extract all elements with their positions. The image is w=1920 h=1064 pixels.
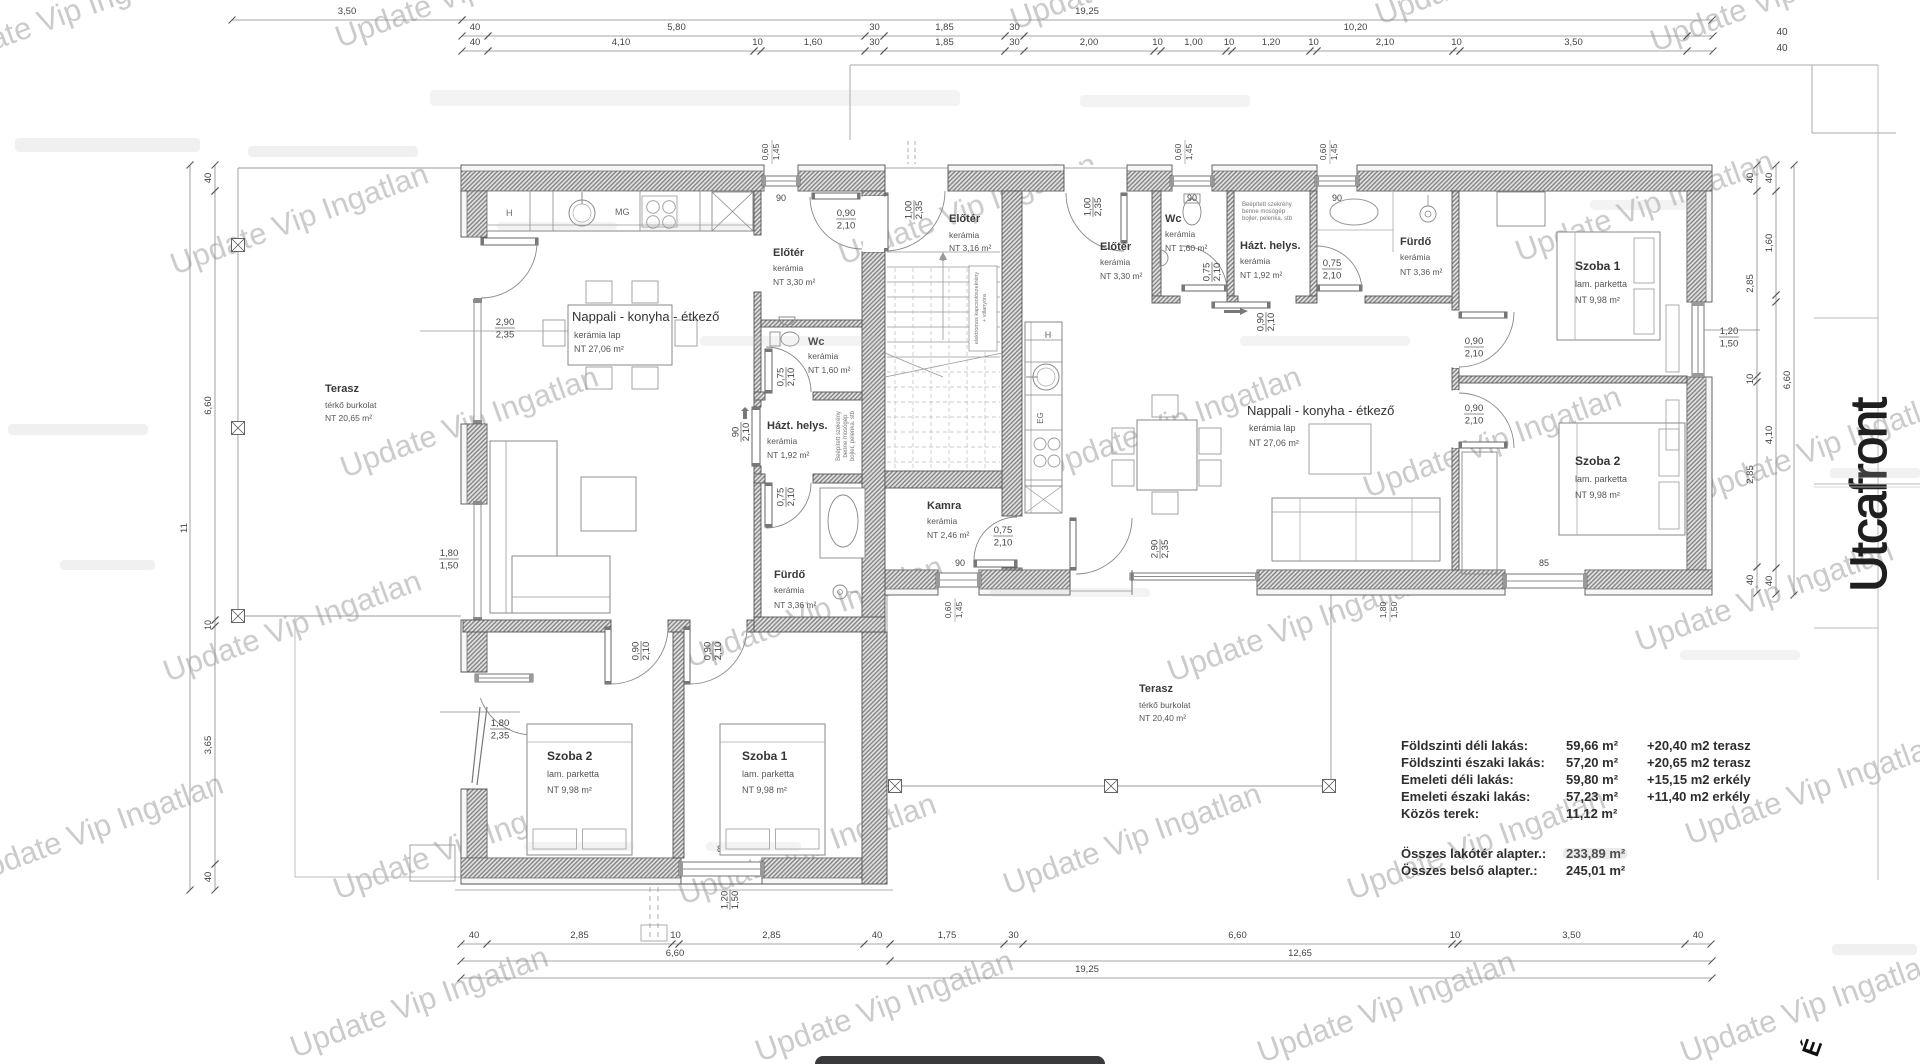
svg-text:NT 9,98 m²: NT 9,98 m² xyxy=(742,785,787,795)
svg-text:40: 40 xyxy=(470,22,481,33)
svg-text:2,00: 2,00 xyxy=(1080,37,1099,48)
svg-text:1,50: 1,50 xyxy=(1720,339,1739,350)
svg-text:90: 90 xyxy=(1332,193,1342,203)
svg-text:2,10: 2,10 xyxy=(1376,37,1395,48)
svg-text:kerámia lap: kerámia lap xyxy=(574,330,621,340)
svg-text:Emeleti északi lakás:: Emeleti északi lakás: xyxy=(1401,789,1530,804)
svg-text:Kamra: Kamra xyxy=(927,500,962,512)
svg-text:6,60: 6,60 xyxy=(1782,371,1793,390)
svg-text:benne mosógép: benne mosógép xyxy=(1242,209,1286,215)
svg-text:lam. parketta: lam. parketta xyxy=(742,769,794,779)
svg-text:1,20: 1,20 xyxy=(720,891,731,910)
svg-text:NT 27,06 m²: NT 27,06 m² xyxy=(1249,438,1299,448)
svg-text:H: H xyxy=(506,208,513,218)
svg-text:kerámia: kerámia xyxy=(949,230,980,240)
svg-text:2,85: 2,85 xyxy=(1745,274,1756,293)
svg-text:2,10: 2,10 xyxy=(741,423,752,442)
svg-text:1,50: 1,50 xyxy=(1389,601,1399,618)
svg-text:NT 9,98 m²: NT 9,98 m² xyxy=(1575,295,1620,305)
svg-text:10: 10 xyxy=(670,930,681,941)
svg-text:NT 9,98 m²: NT 9,98 m² xyxy=(1575,490,1620,500)
svg-text:40: 40 xyxy=(1745,173,1756,184)
svg-text:40: 40 xyxy=(1776,43,1788,54)
svg-text:57,20 m²: 57,20 m² xyxy=(1566,755,1619,770)
svg-text:90: 90 xyxy=(955,558,965,568)
svg-text:bojler, pelenka. stb: bojler, pelenka. stb xyxy=(1242,216,1293,222)
svg-text:kerámia: kerámia xyxy=(773,263,804,273)
svg-text:Beépített szekrény: Beépített szekrény xyxy=(1242,202,1292,208)
svg-text:10: 10 xyxy=(1745,374,1756,385)
svg-text:40: 40 xyxy=(203,872,214,883)
svg-text:30: 30 xyxy=(1009,22,1020,33)
svg-text:3,50: 3,50 xyxy=(1562,930,1581,941)
svg-text:0,60: 0,60 xyxy=(760,143,770,160)
svg-text:kerámia: kerámia xyxy=(1100,257,1131,267)
svg-text:2,10: 2,10 xyxy=(837,221,856,232)
svg-text:+ villanyóra: + villanyóra xyxy=(982,293,988,322)
svg-text:2,35: 2,35 xyxy=(914,201,925,220)
svg-text:Szoba 1: Szoba 1 xyxy=(1575,259,1621,273)
svg-text:kerámia: kerámia xyxy=(767,436,798,446)
svg-text:2,10: 2,10 xyxy=(1465,416,1484,427)
svg-text:NT 3,30 m²: NT 3,30 m² xyxy=(1100,271,1143,281)
svg-text:40: 40 xyxy=(470,37,481,48)
svg-text:2,10: 2,10 xyxy=(1266,313,1277,332)
svg-text:2,35: 2,35 xyxy=(1093,198,1104,217)
svg-text:NT 3,36 m²: NT 3,36 m² xyxy=(1400,267,1443,277)
svg-text:3,50: 3,50 xyxy=(1564,37,1583,48)
svg-text:10: 10 xyxy=(1450,930,1461,941)
svg-text:1,45: 1,45 xyxy=(771,143,781,160)
svg-text:2,10: 2,10 xyxy=(1323,271,1342,282)
svg-text:30: 30 xyxy=(869,37,880,48)
svg-text:Földszinti déli lakás:: Földszinti déli lakás: xyxy=(1401,738,1528,753)
svg-text:2,10: 2,10 xyxy=(1465,349,1484,360)
svg-text:Előtér: Előtér xyxy=(773,247,805,259)
svg-text:2,35: 2,35 xyxy=(491,731,510,742)
svg-text:2,10: 2,10 xyxy=(641,642,652,661)
svg-text:bojler, pelenka. stb: bojler, pelenka. stb xyxy=(850,410,856,461)
svg-text:1,80: 1,80 xyxy=(440,548,459,559)
svg-text:NT 20,65 m²: NT 20,65 m² xyxy=(325,413,372,423)
svg-text:85: 85 xyxy=(1539,558,1549,568)
svg-text:NT 1,60 m²: NT 1,60 m² xyxy=(808,365,851,375)
svg-text:1,45: 1,45 xyxy=(1329,143,1339,160)
svg-text:Földszinti északi lakás:: Földszinti északi lakás: xyxy=(1401,755,1545,770)
svg-text:1,00: 1,00 xyxy=(1184,37,1203,48)
svg-text:12,65: 12,65 xyxy=(1288,948,1312,959)
svg-text:Nappali - konyha - étkező: Nappali - konyha - étkező xyxy=(1247,403,1394,418)
svg-text:NT 3,16 m²: NT 3,16 m² xyxy=(949,243,992,253)
svg-text:lam. parketta: lam. parketta xyxy=(1575,279,1627,289)
svg-text:kerámia: kerámia xyxy=(1400,252,1431,262)
svg-text:1,50: 1,50 xyxy=(440,561,459,572)
svg-text:+20,65 m2 terasz: +20,65 m2 terasz xyxy=(1647,755,1751,770)
svg-text:59,66 m²: 59,66 m² xyxy=(1566,738,1619,753)
svg-text:2,10: 2,10 xyxy=(1212,263,1223,282)
svg-text:2,10: 2,10 xyxy=(713,642,724,661)
svg-text:4,10: 4,10 xyxy=(612,37,631,48)
svg-text:NT 9,98 m²: NT 9,98 m² xyxy=(547,785,592,795)
svg-text:lam. parketta: lam. parketta xyxy=(547,769,599,779)
svg-text:0,75: 0,75 xyxy=(776,488,787,507)
svg-text:2,10: 2,10 xyxy=(994,538,1013,549)
svg-text:kerámia: kerámia xyxy=(774,585,805,595)
svg-text:NT 27,06 m²: NT 27,06 m² xyxy=(574,344,624,354)
svg-text:kerámia: kerámia xyxy=(927,516,958,526)
svg-text:+11,40 m2 erkély: +11,40 m2 erkély xyxy=(1647,789,1751,804)
svg-text:kerámia: kerámia xyxy=(808,351,839,361)
svg-text:Fürdő: Fürdő xyxy=(774,569,805,581)
svg-text:Terasz: Terasz xyxy=(1139,683,1174,695)
svg-text:0,90: 0,90 xyxy=(631,642,642,661)
svg-text:0,90: 0,90 xyxy=(703,642,714,661)
svg-text:10: 10 xyxy=(1308,37,1319,48)
svg-text:6,60: 6,60 xyxy=(203,396,214,415)
svg-text:2,90: 2,90 xyxy=(496,317,515,328)
svg-text:2,10: 2,10 xyxy=(786,488,797,507)
svg-text:Wc: Wc xyxy=(1165,213,1182,225)
svg-text:+15,15 m2 erkély: +15,15 m2 erkély xyxy=(1647,772,1751,787)
svg-text:3,65: 3,65 xyxy=(203,736,214,755)
svg-text:MG: MG xyxy=(615,207,630,217)
svg-text:0,90: 0,90 xyxy=(1465,336,1484,347)
svg-text:0,75: 0,75 xyxy=(1323,258,1342,269)
svg-text:19,25: 19,25 xyxy=(1075,964,1099,975)
svg-text:6,60: 6,60 xyxy=(666,948,685,959)
svg-text:+20,40 m2 terasz: +20,40 m2 terasz xyxy=(1647,738,1751,753)
svg-text:10: 10 xyxy=(203,620,213,630)
svg-text:NT 1,60 m²: NT 1,60 m² xyxy=(1165,243,1208,253)
svg-text:1,00: 1,00 xyxy=(904,201,915,220)
svg-text:térkő burkolat: térkő burkolat xyxy=(325,400,377,410)
svg-text:Nappali - konyha - étkező: Nappali - konyha - étkező xyxy=(572,309,719,324)
svg-text:1,20: 1,20 xyxy=(1720,326,1739,337)
svg-text:30: 30 xyxy=(1009,37,1020,48)
svg-text:40: 40 xyxy=(1764,173,1775,184)
svg-text:Összes lakótér alapter.:: Összes lakótér alapter.: xyxy=(1401,846,1546,861)
svg-text:Terasz: Terasz xyxy=(325,383,360,395)
svg-text:10: 10 xyxy=(1152,37,1163,48)
svg-text:10: 10 xyxy=(1451,37,1462,48)
svg-text:3,50: 3,50 xyxy=(338,6,357,17)
svg-text:0,60: 0,60 xyxy=(1173,143,1183,160)
svg-text:57,23 m²: 57,23 m² xyxy=(1566,789,1619,804)
svg-text:40: 40 xyxy=(1745,575,1756,586)
svg-text:Fürdő: Fürdő xyxy=(1400,236,1431,248)
svg-text:Beépített szekrény: Beépített szekrény xyxy=(836,411,842,461)
svg-text:Előtér: Előtér xyxy=(1100,241,1132,253)
svg-text:11: 11 xyxy=(179,523,190,533)
svg-text:10: 10 xyxy=(1224,37,1235,48)
svg-text:40: 40 xyxy=(469,930,480,941)
svg-text:19,25: 19,25 xyxy=(1075,6,1099,17)
svg-text:40: 40 xyxy=(872,930,883,941)
svg-text:1,75: 1,75 xyxy=(938,930,957,941)
svg-text:EG: EG xyxy=(1036,412,1045,424)
svg-text:1,50: 1,50 xyxy=(730,891,741,910)
svg-text:11,12 m²: 11,12 m² xyxy=(1566,806,1618,821)
svg-text:Házt. helys.: Házt. helys. xyxy=(1240,240,1301,252)
svg-text:2,35: 2,35 xyxy=(496,330,515,341)
svg-text:0,60: 0,60 xyxy=(943,601,953,618)
svg-text:2,85: 2,85 xyxy=(1745,465,1756,484)
svg-text:2,85: 2,85 xyxy=(570,930,589,941)
svg-text:Előtér: Előtér xyxy=(949,213,981,225)
svg-text:0,75: 0,75 xyxy=(776,368,787,387)
svg-text:5,80: 5,80 xyxy=(667,22,686,33)
svg-text:Házt. helys.: Házt. helys. xyxy=(767,420,828,432)
svg-text:10,20: 10,20 xyxy=(1344,22,1368,33)
svg-text:Közös terek:: Közös terek: xyxy=(1401,806,1479,821)
svg-text:245,01 m²: 245,01 m² xyxy=(1566,863,1626,878)
svg-text:2,35: 2,35 xyxy=(1160,540,1171,559)
svg-text:40: 40 xyxy=(1764,576,1775,587)
svg-text:NT 20,40 m²: NT 20,40 m² xyxy=(1139,713,1186,723)
svg-text:0,90: 0,90 xyxy=(1256,313,1267,332)
svg-text:0,60: 0,60 xyxy=(1318,143,1328,160)
svg-text:1,60: 1,60 xyxy=(1764,234,1775,253)
svg-text:90: 90 xyxy=(1187,193,1197,203)
svg-text:NT 2,46 m²: NT 2,46 m² xyxy=(927,530,970,540)
svg-text:0,75: 0,75 xyxy=(994,525,1013,536)
svg-text:1,85: 1,85 xyxy=(935,37,954,48)
svg-text:elektromos kapcsolószekrény: elektromos kapcsolószekrény xyxy=(974,272,980,344)
svg-text:kerámia lap: kerámia lap xyxy=(1249,423,1296,433)
svg-text:30: 30 xyxy=(1008,930,1019,941)
svg-text:NT 3,36 m²: NT 3,36 m² xyxy=(774,600,817,610)
svg-text:lam. parketta: lam. parketta xyxy=(1575,474,1627,484)
svg-text:1,60: 1,60 xyxy=(804,37,823,48)
svg-text:NT 3,30 m²: NT 3,30 m² xyxy=(773,277,816,287)
svg-text:6,60: 6,60 xyxy=(1228,930,1247,941)
svg-text:2,10: 2,10 xyxy=(786,368,797,387)
svg-text:1,45: 1,45 xyxy=(1184,143,1194,160)
svg-text:40: 40 xyxy=(1776,27,1788,38)
svg-text:1,80: 1,80 xyxy=(1378,601,1388,618)
svg-text:10: 10 xyxy=(752,37,763,48)
svg-text:Emeleti déli lakás:: Emeleti déli lakás: xyxy=(1401,772,1514,787)
svg-text:90: 90 xyxy=(731,427,742,438)
svg-text:térkő burkolat: térkő burkolat xyxy=(1139,700,1191,710)
svg-text:kerámia: kerámia xyxy=(1240,256,1271,266)
svg-text:Összes belső alapter.:: Összes belső alapter.: xyxy=(1401,863,1538,878)
svg-text:0,90: 0,90 xyxy=(1465,403,1484,414)
svg-text:90: 90 xyxy=(776,193,786,203)
svg-text:benne mosógép: benne mosógép xyxy=(843,414,849,458)
svg-text:40: 40 xyxy=(203,173,214,184)
svg-text:1,45: 1,45 xyxy=(954,601,964,618)
svg-text:1,80: 1,80 xyxy=(491,718,510,729)
svg-text:40: 40 xyxy=(1693,930,1704,941)
svg-text:Utcafront: Utcafront xyxy=(1840,397,1897,592)
svg-text:NT 1,92 m²: NT 1,92 m² xyxy=(1240,270,1283,280)
svg-text:1,20: 1,20 xyxy=(1262,37,1281,48)
svg-text:kerámia: kerámia xyxy=(1165,229,1196,239)
svg-text:Szoba 2: Szoba 2 xyxy=(547,749,593,763)
svg-text:H: H xyxy=(1045,330,1052,340)
svg-text:2,85: 2,85 xyxy=(762,930,781,941)
svg-text:0,90: 0,90 xyxy=(837,208,856,219)
svg-text:Szoba 2: Szoba 2 xyxy=(1575,454,1621,468)
svg-text:1,85: 1,85 xyxy=(935,22,954,33)
svg-text:4,10: 4,10 xyxy=(1764,426,1775,445)
svg-text:0,75: 0,75 xyxy=(1202,263,1213,282)
svg-text:30: 30 xyxy=(869,22,880,33)
svg-text:2,90: 2,90 xyxy=(1150,540,1161,559)
svg-text:1,00: 1,00 xyxy=(1083,198,1094,217)
svg-text:NT 1,92 m²: NT 1,92 m² xyxy=(767,450,810,460)
svg-text:Szoba 1: Szoba 1 xyxy=(742,749,788,763)
svg-text:59,80 m²: 59,80 m² xyxy=(1566,772,1619,787)
